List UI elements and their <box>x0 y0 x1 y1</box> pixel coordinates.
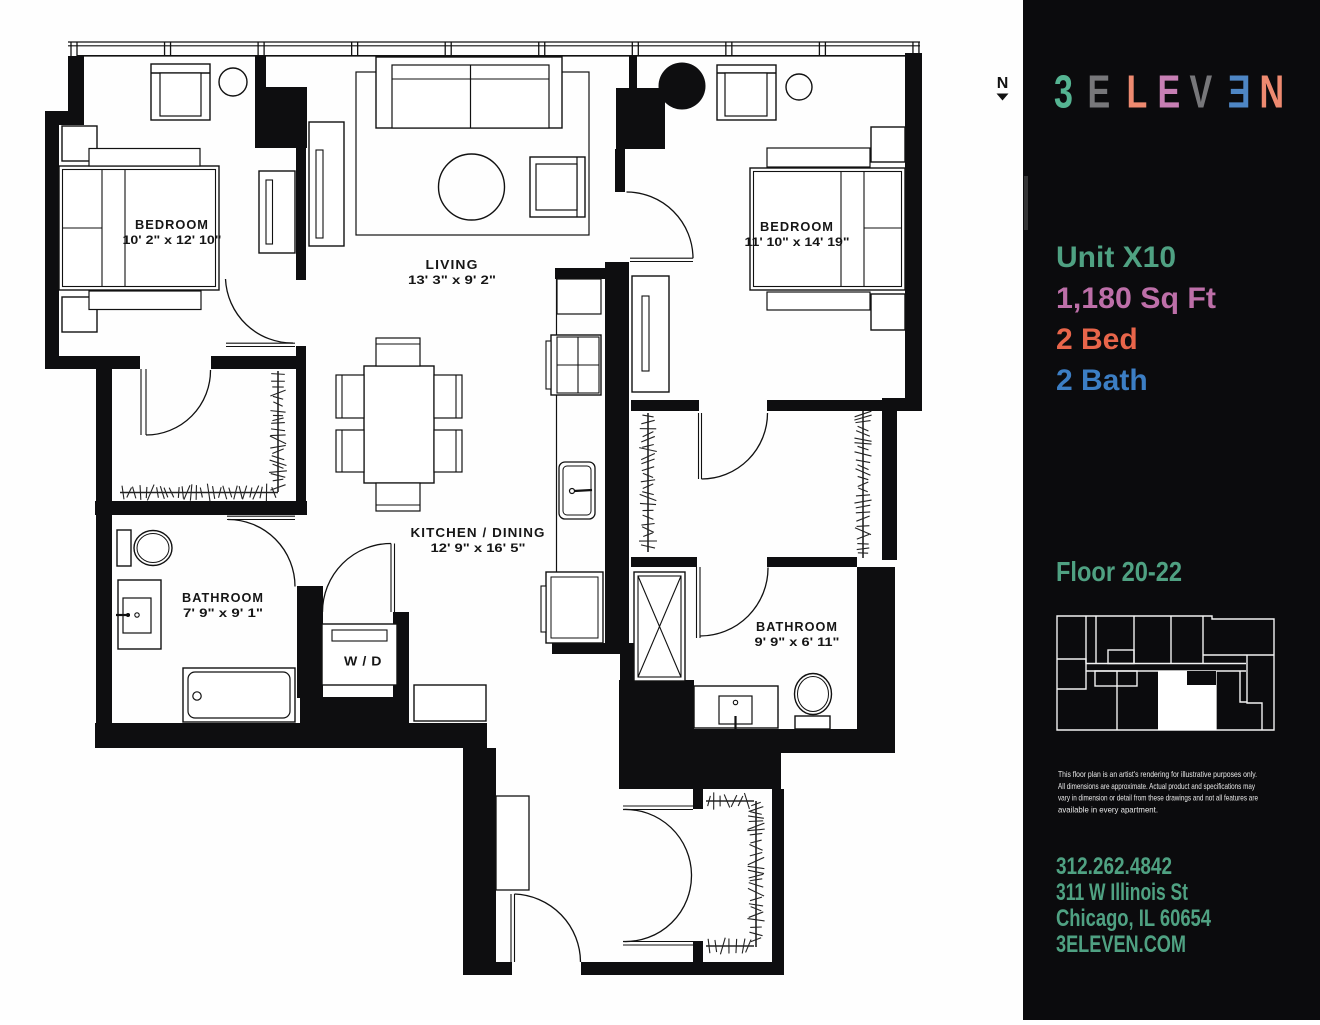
svg-text:N: N <box>997 75 1009 92</box>
svg-text:2 Bed: 2 Bed <box>1056 323 1138 356</box>
svg-text:2 Bath: 2 Bath <box>1056 364 1148 397</box>
svg-text:BATHROOM: BATHROOM <box>182 591 264 605</box>
svg-text:This floor plan is an artist's: This floor plan is an artist's rendering… <box>1058 769 1257 779</box>
svg-text:E: E <box>1158 65 1181 117</box>
svg-text:LIVING: LIVING <box>426 258 479 272</box>
svg-text:Chicago, IL 60654: Chicago, IL 60654 <box>1056 905 1211 932</box>
svg-text:3: 3 <box>1054 65 1073 117</box>
svg-text:W / D: W / D <box>344 655 382 669</box>
svg-text:E: E <box>1228 65 1251 117</box>
svg-text:vary in dimension or detail fr: vary in dimension or detail from these d… <box>1058 793 1258 803</box>
svg-text:All dimensions are approximate: All dimensions are approximate. Actual p… <box>1058 781 1256 791</box>
svg-text:Unit X10: Unit X10 <box>1056 241 1176 274</box>
svg-text:L: L <box>1127 65 1148 117</box>
svg-text:BEDROOM: BEDROOM <box>760 220 834 234</box>
svg-text:12' 9" x 16' 5": 12' 9" x 16' 5" <box>431 541 526 555</box>
svg-text:13' 3" x 9' 2": 13' 3" x 9' 2" <box>408 273 496 287</box>
svg-text:9' 9" x 6' 11": 9' 9" x 6' 11" <box>755 635 840 649</box>
svg-text:N: N <box>1260 65 1285 117</box>
svg-text:11' 10" x 14' 19": 11' 10" x 14' 19" <box>745 235 850 249</box>
svg-text:10' 2" x 12' 10": 10' 2" x 12' 10" <box>123 233 222 247</box>
svg-text:BATHROOM: BATHROOM <box>756 620 838 634</box>
svg-text:E: E <box>1088 65 1111 117</box>
svg-text:BEDROOM: BEDROOM <box>135 218 209 232</box>
svg-text:3ELEVEN.COM: 3ELEVEN.COM <box>1056 931 1186 958</box>
svg-text:311 W Illinois St: 311 W Illinois St <box>1056 879 1188 906</box>
svg-text:312.262.4842: 312.262.4842 <box>1056 853 1172 880</box>
svg-text:7' 9" x 9' 1": 7' 9" x 9' 1" <box>183 606 263 620</box>
svg-text:V: V <box>1190 65 1213 117</box>
svg-text:1,180 Sq Ft: 1,180 Sq Ft <box>1056 282 1216 315</box>
svg-text:Floor 20-22: Floor 20-22 <box>1056 556 1182 587</box>
svg-text:KITCHEN / DINING: KITCHEN / DINING <box>411 526 546 540</box>
svg-text:available in every apartment.: available in every apartment. <box>1058 804 1158 814</box>
